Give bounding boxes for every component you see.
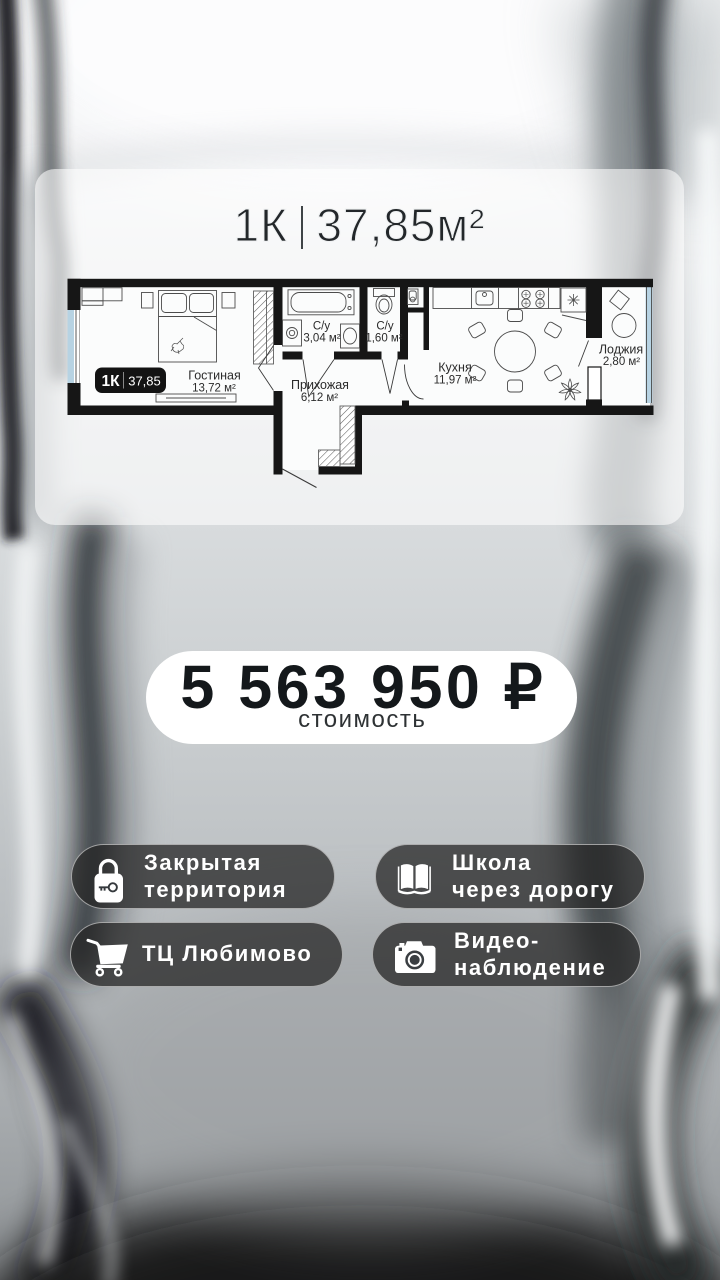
svg-text:С/у: С/у: [376, 321, 394, 333]
svg-text:1К: 1К: [101, 373, 120, 390]
svg-text:6,12 м²: 6,12 м²: [301, 392, 338, 404]
svg-text:11,97 м²: 11,97 м²: [434, 375, 477, 387]
svg-text:С/у: С/у: [313, 321, 331, 333]
svg-text:1,60 м²: 1,60 м²: [365, 333, 402, 345]
svg-text:37,85: 37,85: [128, 374, 161, 389]
svg-text:2,80 м²: 2,80 м²: [603, 356, 640, 368]
svg-text:Лоджия: Лоджия: [599, 343, 643, 357]
svg-text:3,04 м²: 3,04 м²: [303, 333, 340, 345]
svg-text:Кухня: Кухня: [438, 361, 471, 375]
svg-text:Прихожая: Прихожая: [291, 378, 349, 392]
svg-text:Гостиная: Гостиная: [188, 369, 240, 383]
svg-text:13,72 м²: 13,72 м²: [192, 383, 236, 395]
